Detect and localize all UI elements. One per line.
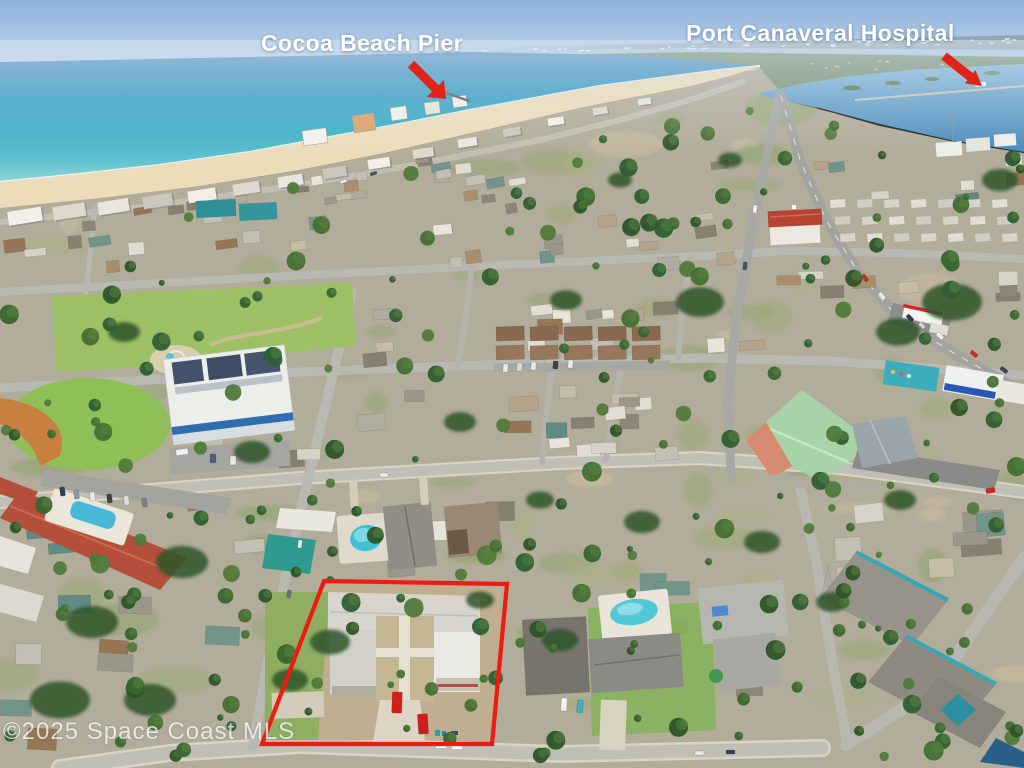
solar-panels <box>206 354 242 380</box>
aerial-listing-photo: Cocoa Beach Pier Port Canaveral Hospital… <box>0 0 1024 768</box>
recycle-bin <box>435 730 440 736</box>
aerial-photo-canvas <box>0 0 1024 768</box>
carport <box>332 686 376 697</box>
mls-watermark: ©2025 Space Coast MLS <box>3 718 295 746</box>
tennis-court <box>239 202 278 221</box>
atmospheric-haze <box>0 40 1024 155</box>
solar-panels <box>172 359 204 384</box>
red-roof-church <box>768 205 823 245</box>
tennis-court <box>196 199 237 218</box>
teal-building <box>262 534 316 574</box>
subject-property <box>265 584 503 742</box>
pier-label: Cocoa Beach Pier <box>261 30 463 57</box>
hospital-label: Port Canaveral Hospital <box>686 20 955 47</box>
blue-tarp <box>712 605 729 617</box>
